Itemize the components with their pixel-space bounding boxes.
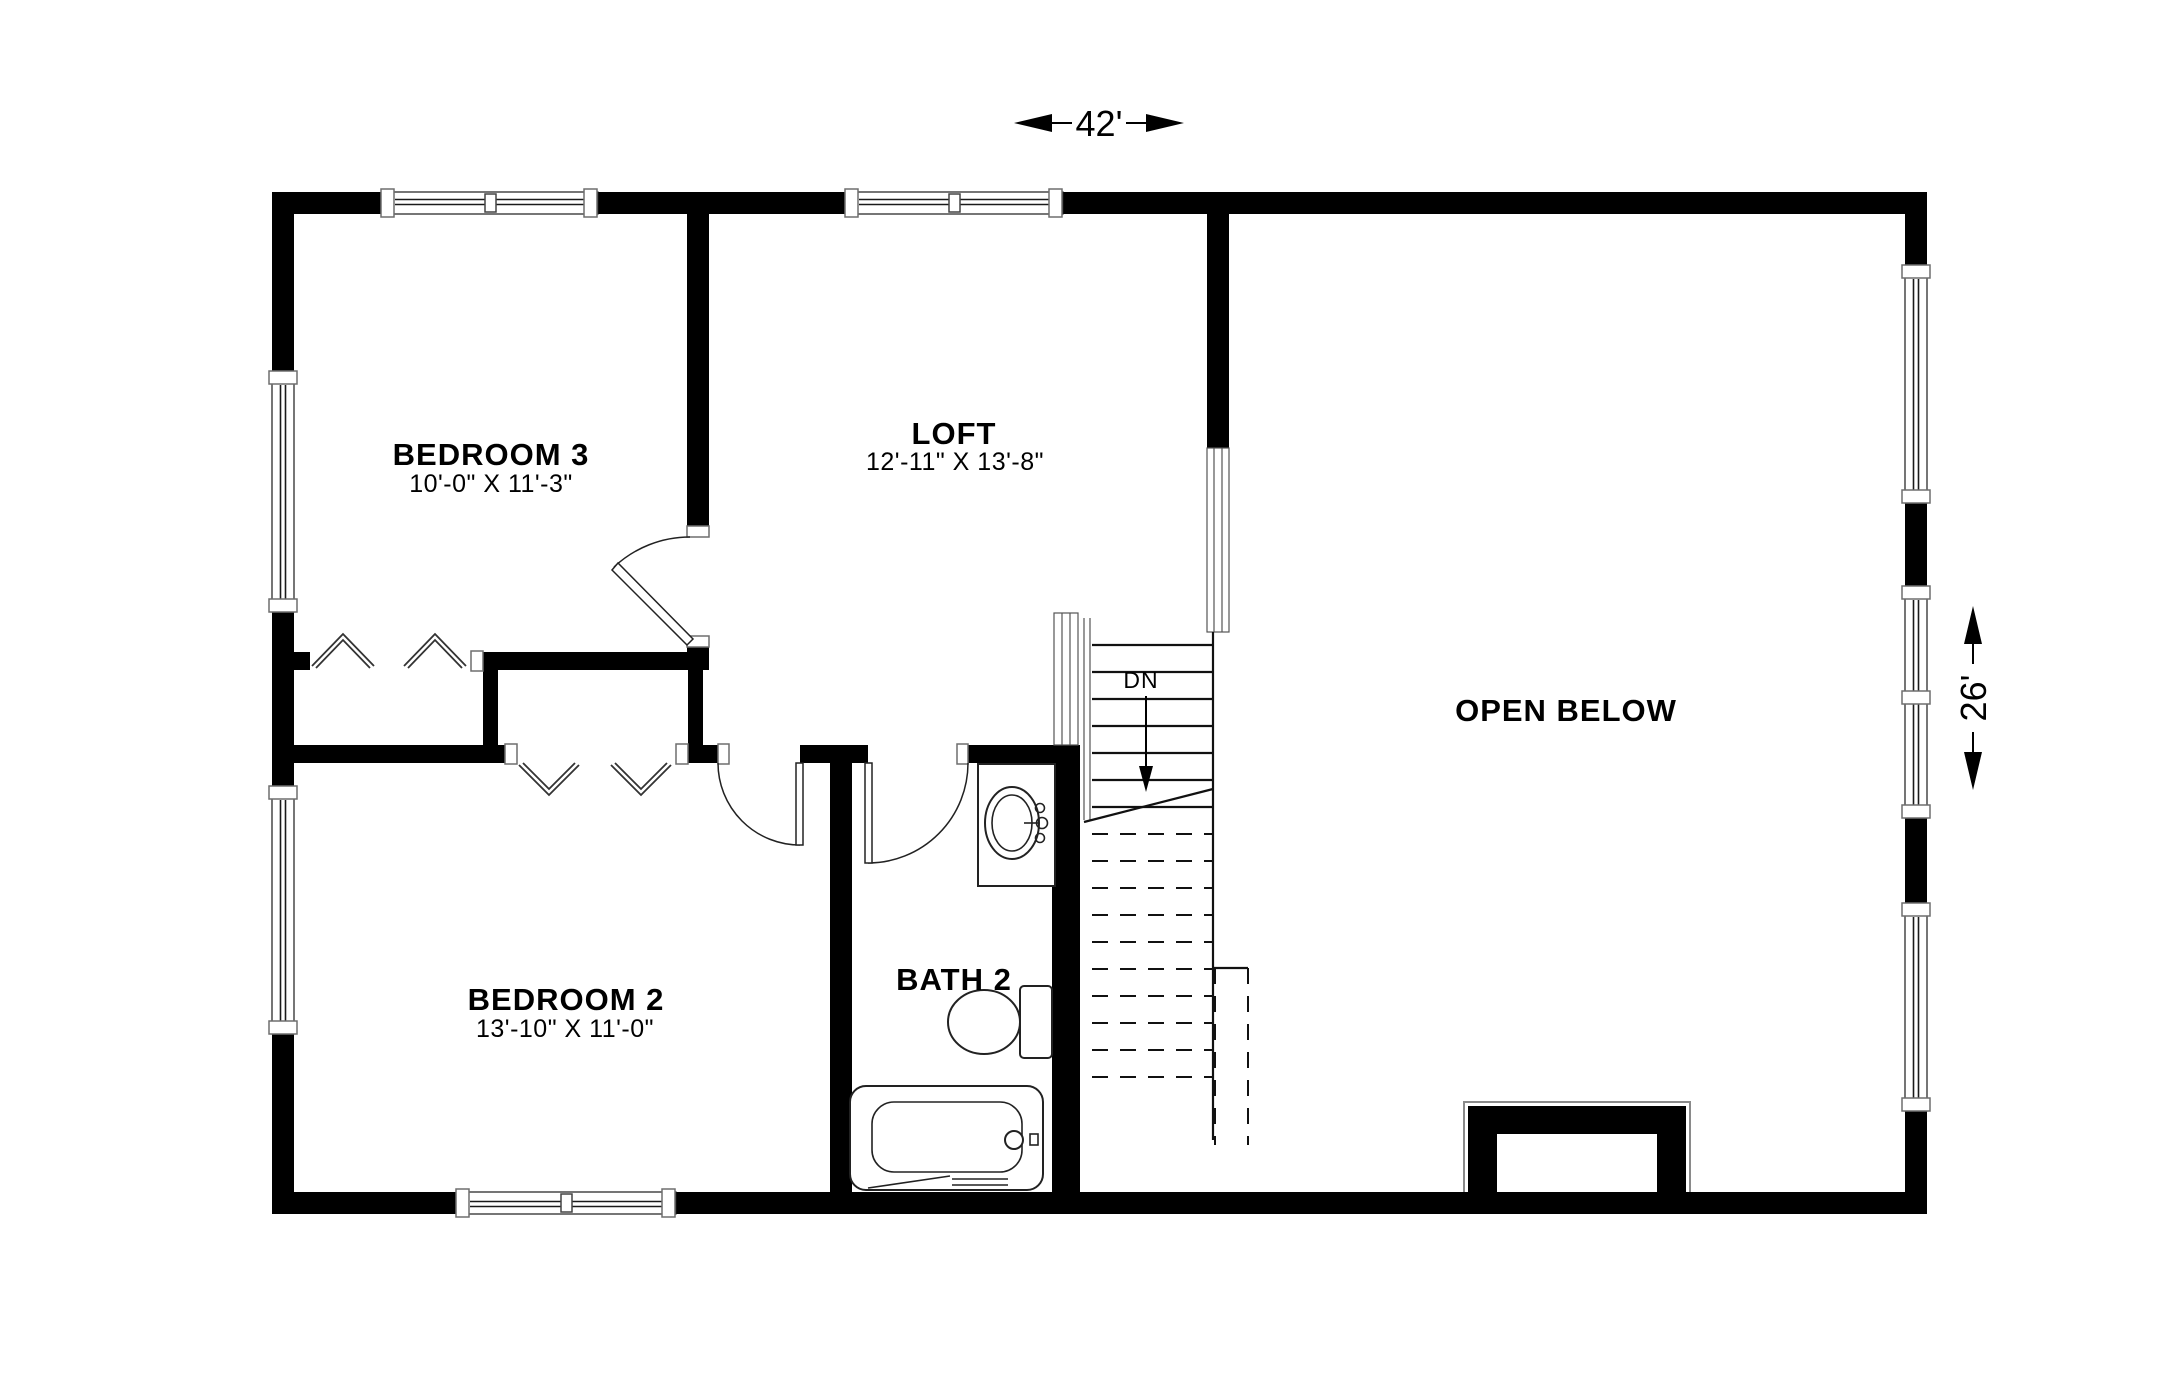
toilet-bowl xyxy=(948,990,1020,1054)
loft-size: 12'-11" X 13'-8" xyxy=(866,448,1044,476)
bath2-door-leaf xyxy=(865,763,872,863)
window-bedroom2-bottom xyxy=(456,1189,676,1217)
bedroom2-door-swing xyxy=(718,763,800,845)
height-dimension: 26' xyxy=(1953,606,1994,790)
fireplace-opening xyxy=(1497,1134,1657,1192)
floor-plan-canvas: DN xyxy=(0,0,2175,1386)
fireplace-chase xyxy=(1464,1102,1690,1192)
wall-closet-top xyxy=(483,652,703,670)
wall-loft-openbelow xyxy=(1207,214,1229,448)
floor-plan-page: DN xyxy=(0,0,2175,1386)
staircase: DN xyxy=(1084,632,1248,1145)
bedroom2-door xyxy=(718,744,803,845)
bedroom2-closet-bifold-doors xyxy=(505,744,688,795)
wall-closet-divider xyxy=(483,652,498,747)
bedroom3-door-leaf xyxy=(612,563,693,645)
bath2-door-swing xyxy=(868,763,968,863)
dim-arrow-left xyxy=(1014,114,1052,132)
bedroom3-closet-bifold-doors xyxy=(312,634,483,671)
bedroom3-door xyxy=(612,526,709,647)
vanity-sink xyxy=(978,764,1055,886)
window-loft-top xyxy=(845,189,1063,217)
bedroom2-door-leaf xyxy=(796,763,803,845)
window-right-lower xyxy=(1902,903,1930,1111)
bedroom3-size: 10'-0" X 11'-3" xyxy=(409,470,573,498)
window-right-upper xyxy=(1902,265,1930,503)
window-left-upper xyxy=(269,371,297,612)
exterior-walls xyxy=(272,192,1927,1214)
room-labels: BEDROOM 3 10'-0" X 11'-3" LOFT 12'-11" X… xyxy=(393,416,1677,1043)
bath2-door xyxy=(865,744,968,863)
bathtub xyxy=(850,1086,1043,1190)
wall-bath-west xyxy=(830,763,852,1192)
wall-hall-corner xyxy=(688,745,718,763)
width-dimension: 42' xyxy=(1014,103,1184,144)
bedroom3-label: BEDROOM 3 xyxy=(393,437,590,472)
interior-walls xyxy=(273,214,1229,1192)
bedroom3-door-swing xyxy=(614,537,690,567)
dim-arrow-up xyxy=(1964,606,1982,644)
bedroom2-label: BEDROOM 2 xyxy=(468,982,665,1017)
wall-bedroom3-loft xyxy=(687,214,709,537)
stair-direction-label: DN xyxy=(1123,667,1158,693)
window-right-middle xyxy=(1902,586,1930,818)
height-dimension-label: 26' xyxy=(1953,675,1994,722)
wall-hall-pier xyxy=(800,745,868,763)
toilet-tank xyxy=(1020,986,1052,1058)
wall-bath-east xyxy=(1052,745,1080,1192)
stair-break-line xyxy=(1084,789,1213,822)
tub-drain xyxy=(1005,1131,1023,1149)
wall-closet-left-stub xyxy=(294,652,310,670)
window-bedroom3-top xyxy=(381,189,598,217)
open-below-label: OPEN BELOW xyxy=(1455,693,1677,728)
loft-label: LOFT xyxy=(912,416,997,451)
loft-railing xyxy=(1207,448,1229,632)
bedroom2-size: 13'-10" X 11'-0" xyxy=(476,1015,654,1043)
bath2-label: BATH 2 xyxy=(896,962,1012,997)
window-left-lower xyxy=(269,786,297,1034)
dim-arrow-right xyxy=(1146,114,1184,132)
dim-arrow-down xyxy=(1964,752,1982,790)
wall-bedroom2-north xyxy=(273,745,513,763)
width-dimension-label: 42' xyxy=(1076,103,1123,144)
wall-left xyxy=(272,192,294,1214)
